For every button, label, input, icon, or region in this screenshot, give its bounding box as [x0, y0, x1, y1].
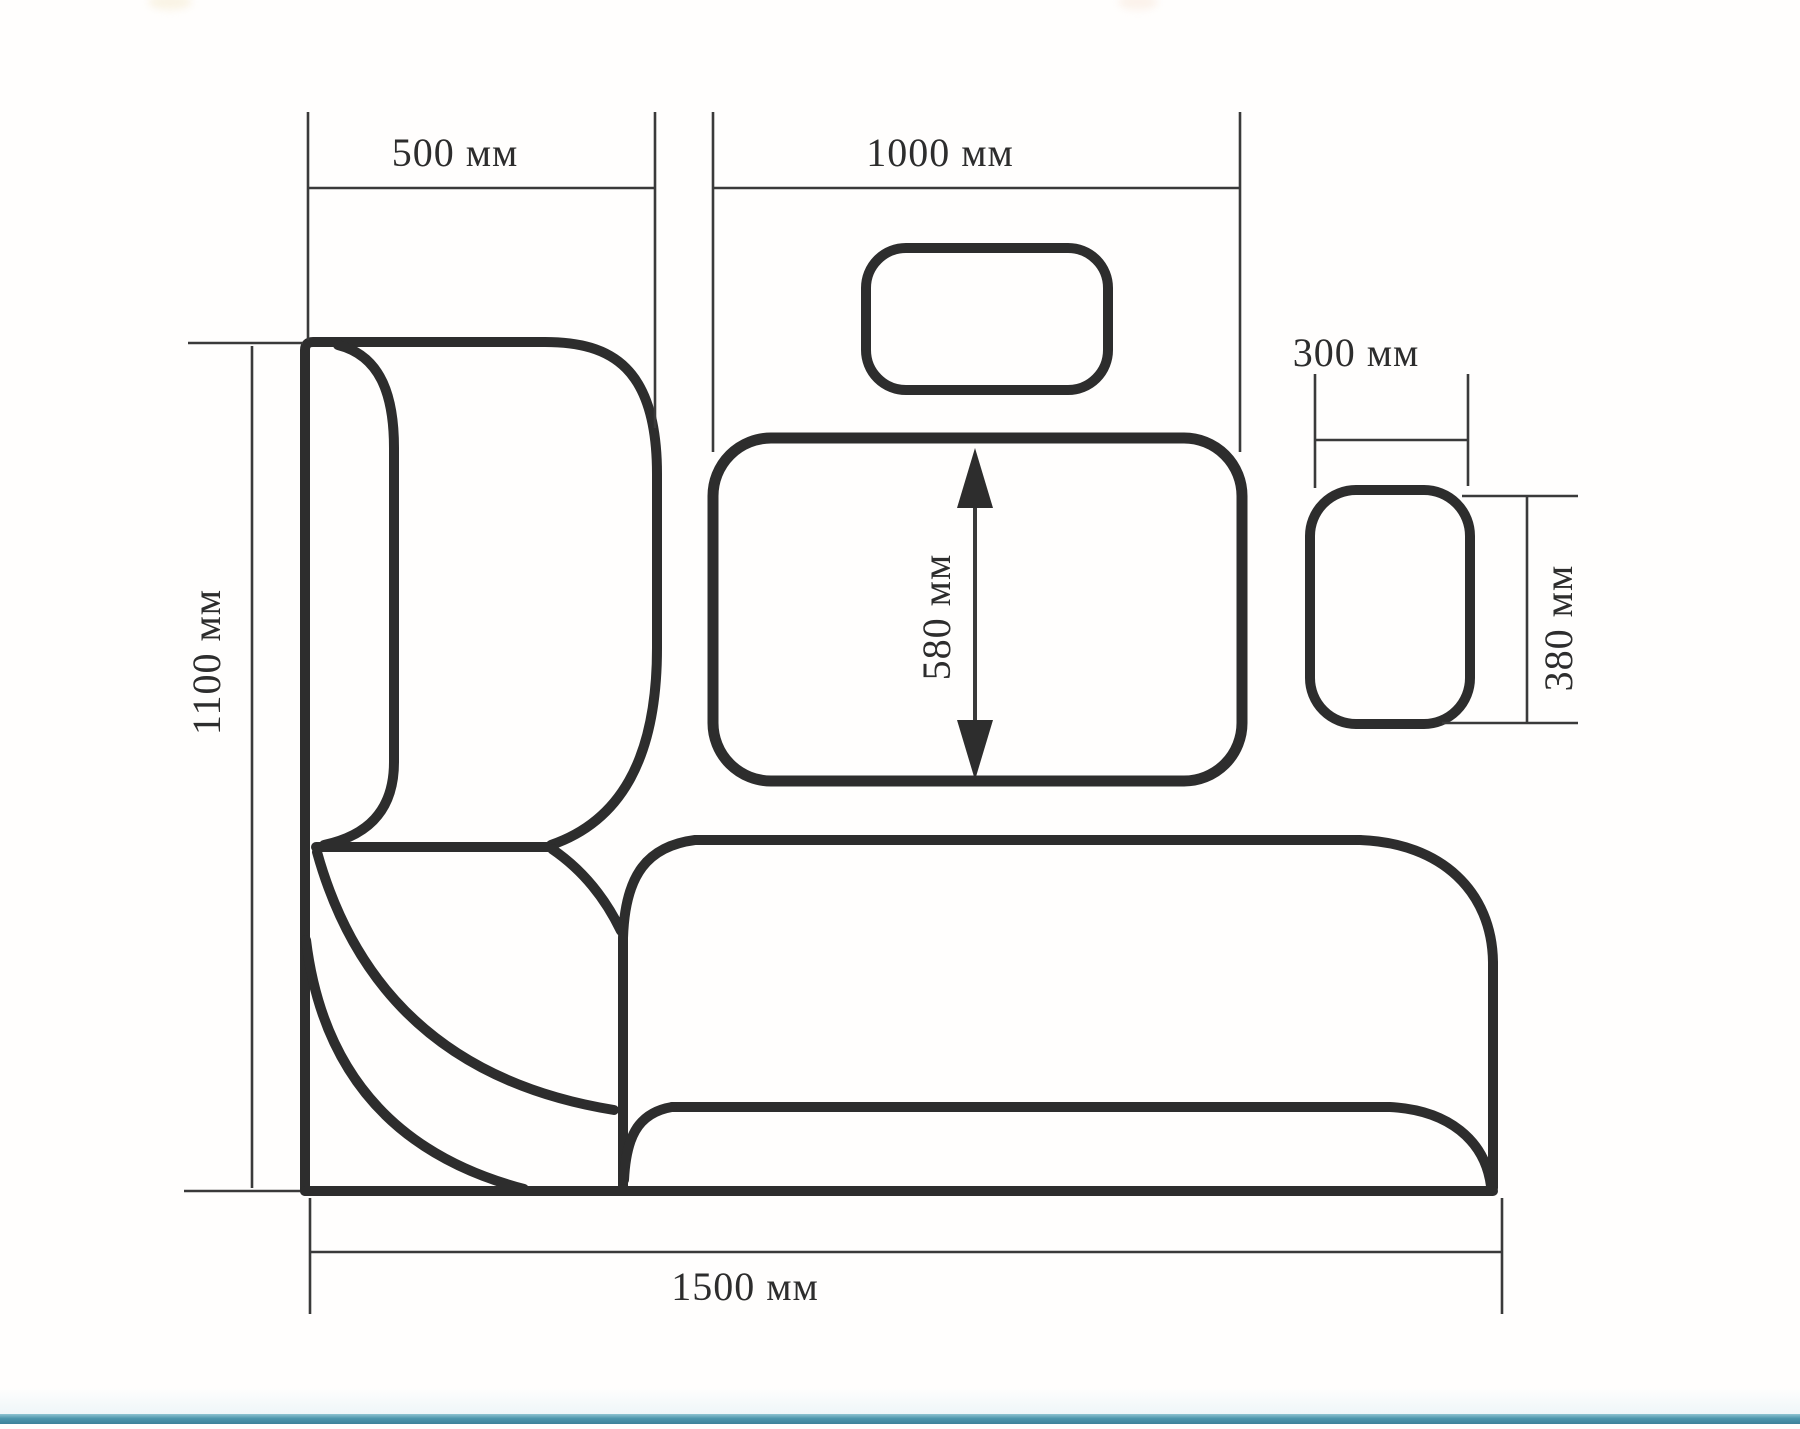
footer-accent-bar [0, 1414, 1800, 1424]
dimension-label-580: 580 мм [914, 554, 959, 681]
dimension-label-380: 380 мм [1536, 565, 1581, 692]
bench-bottom-seat-front-line [672, 1107, 1491, 1186]
dim-1500 [310, 1198, 1502, 1314]
bench-back-inner-line [324, 345, 394, 845]
arrowhead-up-icon [957, 448, 993, 508]
plan-drawing: 500 мм 1000 мм 300 мм 580 мм 380 мм 1100… [0, 0, 1800, 1424]
dim-1100 [184, 343, 303, 1191]
corner-seat-arc-short [552, 849, 621, 931]
dimension-drawing-canvas: 500 мм 1000 мм 300 мм 580 мм 380 мм 1100… [0, 0, 1800, 1424]
corner-seat-arc-lower [306, 940, 524, 1189]
dim-300 [1315, 374, 1468, 488]
dimension-label-1500: 1500 мм [671, 1264, 819, 1309]
bench-bottom-back-edge [623, 840, 1360, 1188]
dimension-label-1100: 1100 мм [184, 589, 229, 735]
dimension-label-300: 300 мм [1293, 330, 1420, 375]
dimension-label-1000: 1000 мм [866, 130, 1014, 175]
dim-580-arrow [957, 448, 993, 780]
stool-right-outline [1310, 490, 1470, 724]
dimension-label-500: 500 мм [392, 130, 519, 175]
corner-seat-arc-upper [317, 852, 614, 1110]
bench-bottom-seat-front-curl [624, 1107, 672, 1180]
stool-above-table-outline [866, 248, 1108, 390]
arrowhead-down-icon [957, 720, 993, 780]
bench-bottom-wing [305, 840, 1493, 1191]
corner-seat-wedge [306, 849, 621, 1189]
